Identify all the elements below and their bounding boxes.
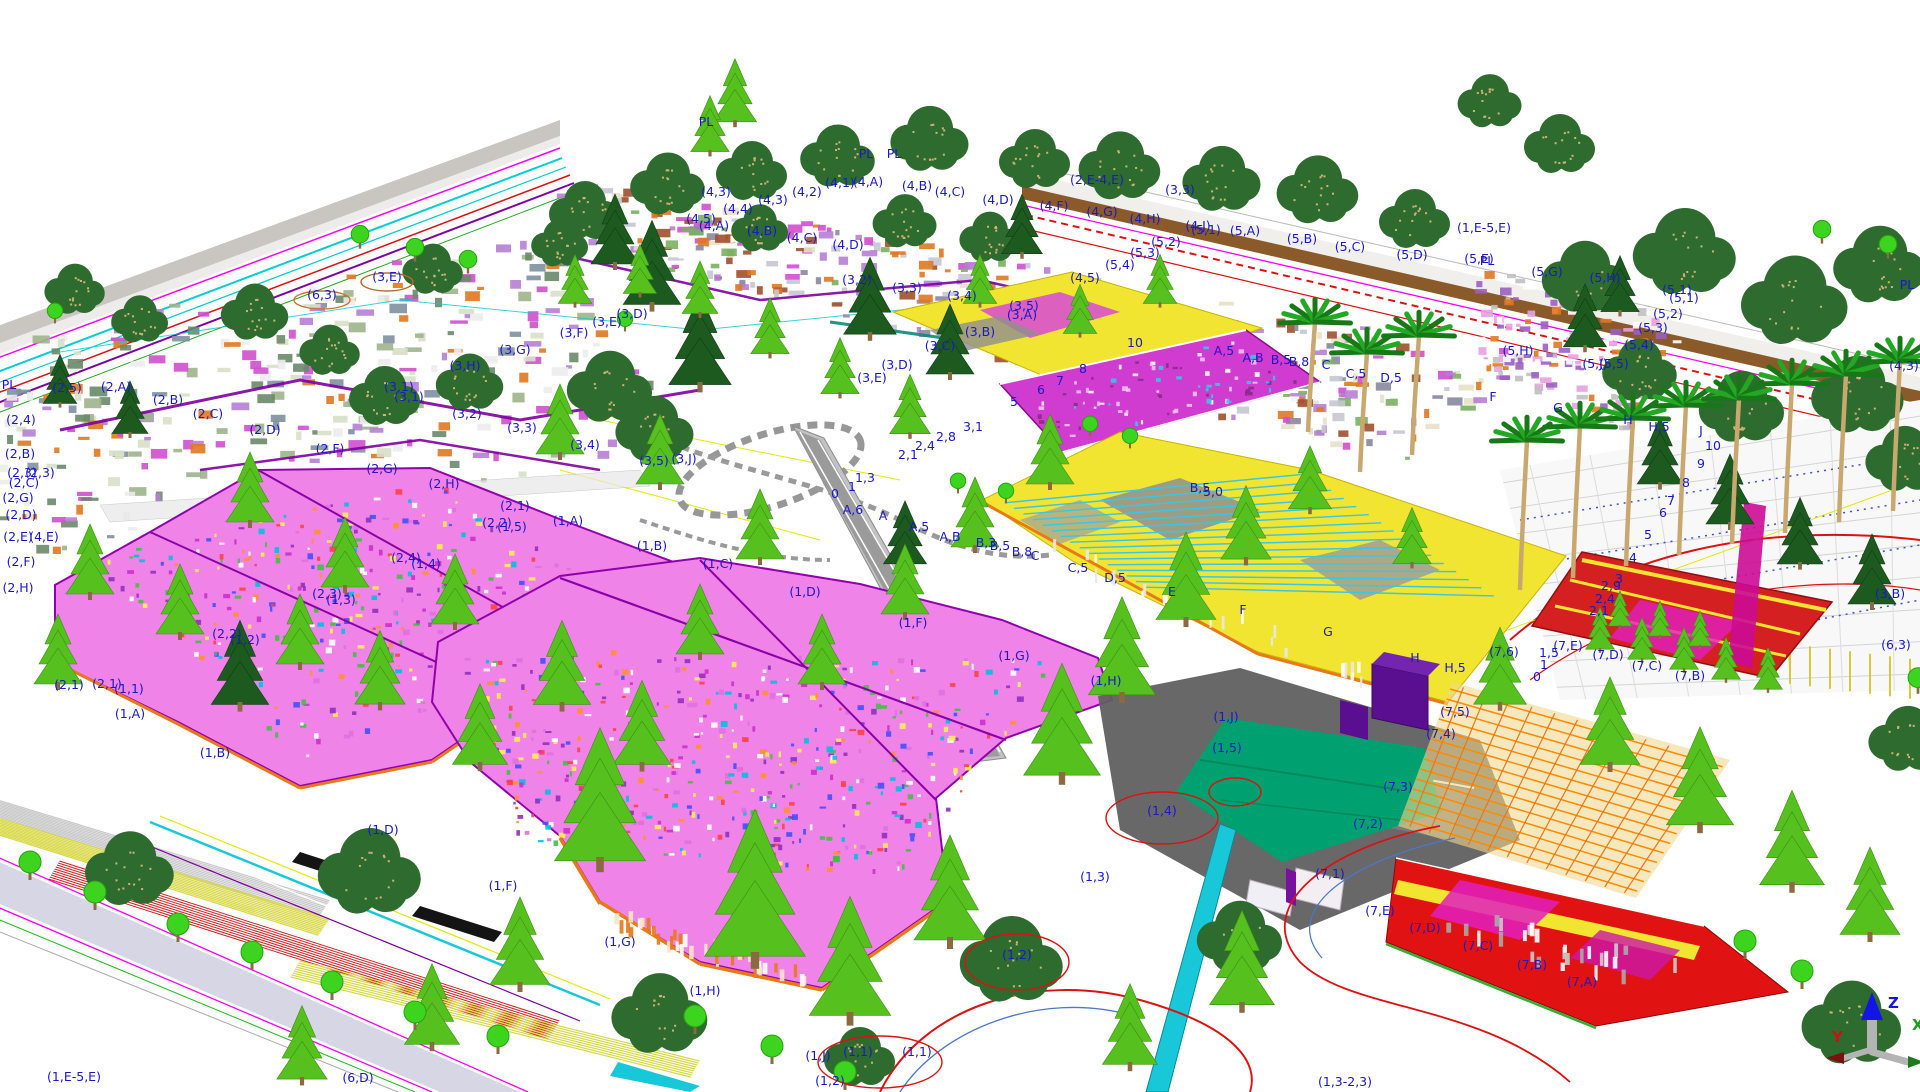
grid-label: (4,A) — [699, 218, 729, 233]
grid-label: PL — [859, 146, 874, 161]
grid-label: F — [1239, 602, 1246, 617]
grid-label: (4,H) — [1129, 211, 1160, 226]
grid-label: (3,B) — [965, 324, 995, 339]
road-bl-green — [0, 918, 415, 1092]
grid-label: H,5 — [1648, 419, 1669, 434]
grid-label: (2,E-4,E) — [1070, 172, 1124, 187]
grid-label: 6 — [1659, 505, 1667, 520]
grid-label: 9 — [1697, 456, 1705, 471]
grid-label: (2,D) — [5, 507, 36, 522]
grid-label: (4,D) — [982, 192, 1013, 207]
grid-label: (5,D) — [1396, 247, 1427, 262]
grid-label: (4,3) — [1889, 358, 1919, 373]
grid-label: (5,1) — [1669, 290, 1699, 305]
grid-label: 2,1 — [1589, 603, 1609, 618]
grid-label: (2,C) — [193, 406, 223, 421]
grid-label: (1,G) — [998, 648, 1029, 663]
grid-label: (3,E) — [592, 314, 622, 329]
grid-label: (1,1) — [843, 1044, 873, 1059]
grid-label: 1,3 — [855, 470, 875, 485]
grid-label: (6,3) — [307, 287, 337, 302]
grid-label: (4,C) — [787, 230, 817, 245]
grid-label: (5,4) — [1105, 257, 1135, 272]
grid-label: 8 — [1682, 475, 1690, 490]
x-axis-label: X — [1912, 1016, 1920, 1034]
grid-label: (1,2) — [1002, 947, 1032, 962]
grid-label: 10 — [1127, 335, 1143, 350]
grid-label: (5,E) — [1464, 251, 1494, 266]
grid-label: (3,2) — [842, 272, 872, 287]
grid-label: (1,1) — [114, 681, 144, 696]
grid-label: (7,5) — [1440, 704, 1470, 719]
grid-label: (1,H) — [689, 983, 720, 998]
plaza-path2 — [640, 520, 830, 560]
grid-label: (4,E) — [29, 529, 59, 544]
grid-label: (5,3) — [1638, 320, 1668, 335]
grid-label: (4,2) — [792, 184, 822, 199]
grid-label: (2,F) — [316, 441, 345, 456]
grid-label: G — [1323, 624, 1333, 639]
grid-label: 4 — [1629, 550, 1637, 565]
grid-label: (4,5) — [1070, 270, 1100, 285]
grid-label: G — [1553, 400, 1563, 415]
grid-label: (6,D) — [342, 1070, 373, 1085]
grid-label: (5,5) — [1599, 356, 1629, 371]
grid-label: (4,A) — [853, 174, 883, 189]
grid-label: (4,D) — [832, 237, 863, 252]
grid-label: 6 — [1037, 382, 1045, 397]
grid-label: (7,C) — [1463, 938, 1493, 953]
grid-label: (1,J) — [1213, 709, 1238, 724]
grid-label: 8 — [1079, 361, 1087, 376]
grid-label: 5 — [1010, 394, 1018, 409]
grid-label: 7 — [1056, 373, 1064, 388]
grid-label: (7,6) — [1489, 644, 1519, 659]
grid-label: (1,A) — [553, 513, 583, 528]
z-axis-label: Z — [1888, 994, 1899, 1012]
grid-label: (4,F) — [1040, 198, 1069, 213]
grid-label: (5,A) — [1230, 223, 1260, 238]
grid-label: C,5 — [1068, 560, 1089, 575]
grid-label: (4,3) — [758, 192, 788, 207]
grid-label: (2,G) — [2, 490, 33, 505]
grid-label: (3,F) — [560, 325, 589, 340]
bim-3d-viewport[interactable]: PLPLPLPLPLPL(6,3)(3,E)(4,3)(4,4)(4,3)(4,… — [0, 0, 1920, 1092]
grid-label: (7,D) — [1592, 647, 1623, 662]
grid-label: A,5 — [909, 519, 929, 534]
grid-label: (7,3) — [1383, 779, 1413, 794]
grid-label: (7,1) — [1315, 866, 1345, 881]
grid-label: (5,G) — [1531, 264, 1562, 279]
y-axis-label: Y — [1831, 1028, 1844, 1046]
grid-label: 2,8 — [936, 429, 956, 444]
grid-label: (1,D) — [789, 584, 820, 599]
grid-label: (4,B) — [902, 178, 932, 193]
grid-label: (3,E) — [372, 269, 402, 284]
grid-label: (1,4) — [411, 556, 441, 571]
grid-label: (4,4) — [723, 201, 753, 216]
grid-label: (1,F) — [899, 615, 928, 630]
red-building-lower — [1386, 858, 1788, 1026]
grid-label: B,5 — [990, 538, 1011, 553]
grid-label: (3,G) — [499, 342, 530, 357]
grid-label: (5,1) — [1191, 222, 1221, 237]
grid-label: (2,H) — [428, 476, 459, 491]
grid-label: (3,4) — [570, 437, 600, 452]
grid-label: D,5 — [1380, 370, 1402, 385]
grid-label: (2,4) — [6, 412, 36, 427]
grid-label: A,6 — [843, 502, 864, 517]
grid-label: A,B — [1242, 350, 1263, 365]
grid-label: (3,C) — [925, 338, 955, 353]
grid-label: 10 — [1705, 438, 1721, 453]
grid-label: 5 — [1644, 527, 1652, 542]
path-red-curve1 — [880, 990, 1252, 1092]
grid-label: (1,C) — [703, 556, 733, 571]
grid-label: (1,3) — [326, 592, 356, 607]
grid-label: (1,H) — [1090, 673, 1121, 688]
grid-label: 0 — [831, 486, 839, 501]
grid-label: 1 — [1540, 657, 1548, 672]
grid-label: A,B — [939, 529, 960, 544]
grid-label: (4,3) — [701, 184, 731, 199]
grid-label: (3,2) — [452, 406, 482, 421]
grid-label: (1,E-5,E) — [1457, 220, 1511, 235]
grid-label: (1,B) — [637, 538, 667, 553]
grid-label: (7,B) — [1675, 668, 1705, 683]
grid-label: (1,3-2,3) — [1318, 1074, 1372, 1089]
grid-label: (3,H) — [449, 358, 480, 373]
grid-label: (3,5) — [639, 453, 669, 468]
grid-label: (5,H) — [1502, 343, 1533, 358]
grid-label: (1,5) — [1212, 740, 1242, 755]
grid-label: (4,B) — [747, 223, 777, 238]
grid-label: (3,1) — [394, 389, 424, 404]
grid-label: (3,4) — [947, 288, 977, 303]
grid-label: (1,2) — [230, 632, 260, 647]
grid-label: (7,A) — [1567, 974, 1597, 989]
grid-label: (2,H) — [2, 580, 33, 595]
grid-label: (2,5) — [52, 380, 82, 395]
grid-label: C,5 — [1346, 366, 1367, 381]
grid-label: (1,5) — [497, 519, 527, 534]
grid-label: PL — [887, 146, 902, 161]
grid-label: A,5 — [1214, 343, 1234, 358]
grid-label: (1,3) — [1080, 869, 1110, 884]
grid-label: (6,3) — [1881, 637, 1911, 652]
grid-label: (7,C) — [1632, 658, 1662, 673]
grid-label: (1,G) — [604, 934, 635, 949]
grid-label: (3,3) — [507, 420, 537, 435]
grid-label: (2,B) — [153, 392, 183, 407]
grid-label: (1,4) — [1147, 803, 1177, 818]
van-purple-panel — [1286, 868, 1296, 906]
grid-label: (3,3) — [892, 280, 922, 295]
grid-label: (5,2) — [1653, 306, 1683, 321]
grid-label: (4,C) — [935, 184, 965, 199]
grid-label: (4,1) — [825, 175, 855, 190]
grid-label: 3,1 — [963, 419, 983, 434]
grid-label: C — [1031, 548, 1040, 563]
grid-label: B,8 — [1289, 354, 1310, 369]
gizmo-shaft — [1867, 1018, 1877, 1054]
grid-label: A — [879, 508, 888, 523]
model-scene-canvas[interactable]: PLPLPLPLPLPL(6,3)(3,E)(4,3)(4,4)(4,3)(4,… — [0, 0, 1920, 1092]
grid-label: (1,J) — [805, 1048, 830, 1063]
grid-label: 7 — [1667, 493, 1675, 508]
grid-label: (1,A) — [115, 706, 145, 721]
grid-label: D,5 — [1104, 570, 1126, 585]
grid-label: E — [1168, 584, 1176, 599]
grid-label: (5,H) — [1589, 270, 1620, 285]
grid-label: (1,D) — [367, 822, 398, 837]
grid-label: H,5 — [1444, 660, 1465, 675]
grid-label: 0 — [1533, 669, 1541, 684]
grid-label: PL — [2, 377, 17, 392]
grid-label: (7,B) — [1517, 957, 1547, 972]
grid-label: (5,B) — [1287, 231, 1317, 246]
grid-label: (7,4) — [1426, 726, 1456, 741]
grid-label: H — [1410, 650, 1419, 665]
grid-label: PL — [699, 114, 714, 129]
grid-label: (7,2) — [1353, 816, 1383, 831]
grid-label: (2,1) — [54, 677, 84, 692]
grid-label: 1 — [848, 479, 856, 494]
purple-container2 — [1340, 700, 1368, 740]
grid-label: (2,B) — [5, 446, 35, 461]
grid-label: (2,F) — [7, 554, 36, 569]
grid-label: (5,4) — [1624, 337, 1654, 352]
grid-label: (3,3) — [1165, 182, 1195, 197]
grid-label: (5,C) — [1335, 239, 1365, 254]
grid-label: (3,J) — [671, 451, 696, 466]
grid-label: (2,G) — [366, 461, 397, 476]
grid-label: (3,B) — [1875, 586, 1905, 601]
grid-label: B,8 — [1012, 544, 1033, 559]
grid-label: (1,B) — [200, 745, 230, 760]
grid-label: (1,E-5,E) — [47, 1069, 101, 1084]
grid-label: (2,A) — [101, 379, 131, 394]
grid-label: 5,0 — [1203, 484, 1223, 499]
grid-label: (2,1) — [500, 498, 530, 513]
grid-label: J — [1698, 423, 1703, 438]
grid-label: H — [1623, 412, 1632, 427]
grid-label: (7,D) — [1409, 920, 1440, 935]
grid-label: (2,D) — [249, 422, 280, 437]
grid-label: (7,E) — [1365, 903, 1395, 918]
grid-label: F — [1489, 389, 1496, 404]
grid-label: (1,1) — [902, 1044, 932, 1059]
grid-label: (3,A) — [1007, 307, 1037, 322]
grid-label: 2,4 — [915, 438, 935, 453]
grid-label: (1,2) — [815, 1073, 845, 1088]
grid-label: (1,F) — [489, 878, 518, 893]
grid-label: (2,C) — [9, 475, 39, 490]
x-axis-arrow — [1908, 1056, 1920, 1068]
grid-label: C — [1322, 357, 1331, 372]
grid-label: PL — [1900, 277, 1915, 292]
grid-label: (4,G) — [1086, 204, 1117, 219]
grid-label: (3,E) — [857, 370, 887, 385]
